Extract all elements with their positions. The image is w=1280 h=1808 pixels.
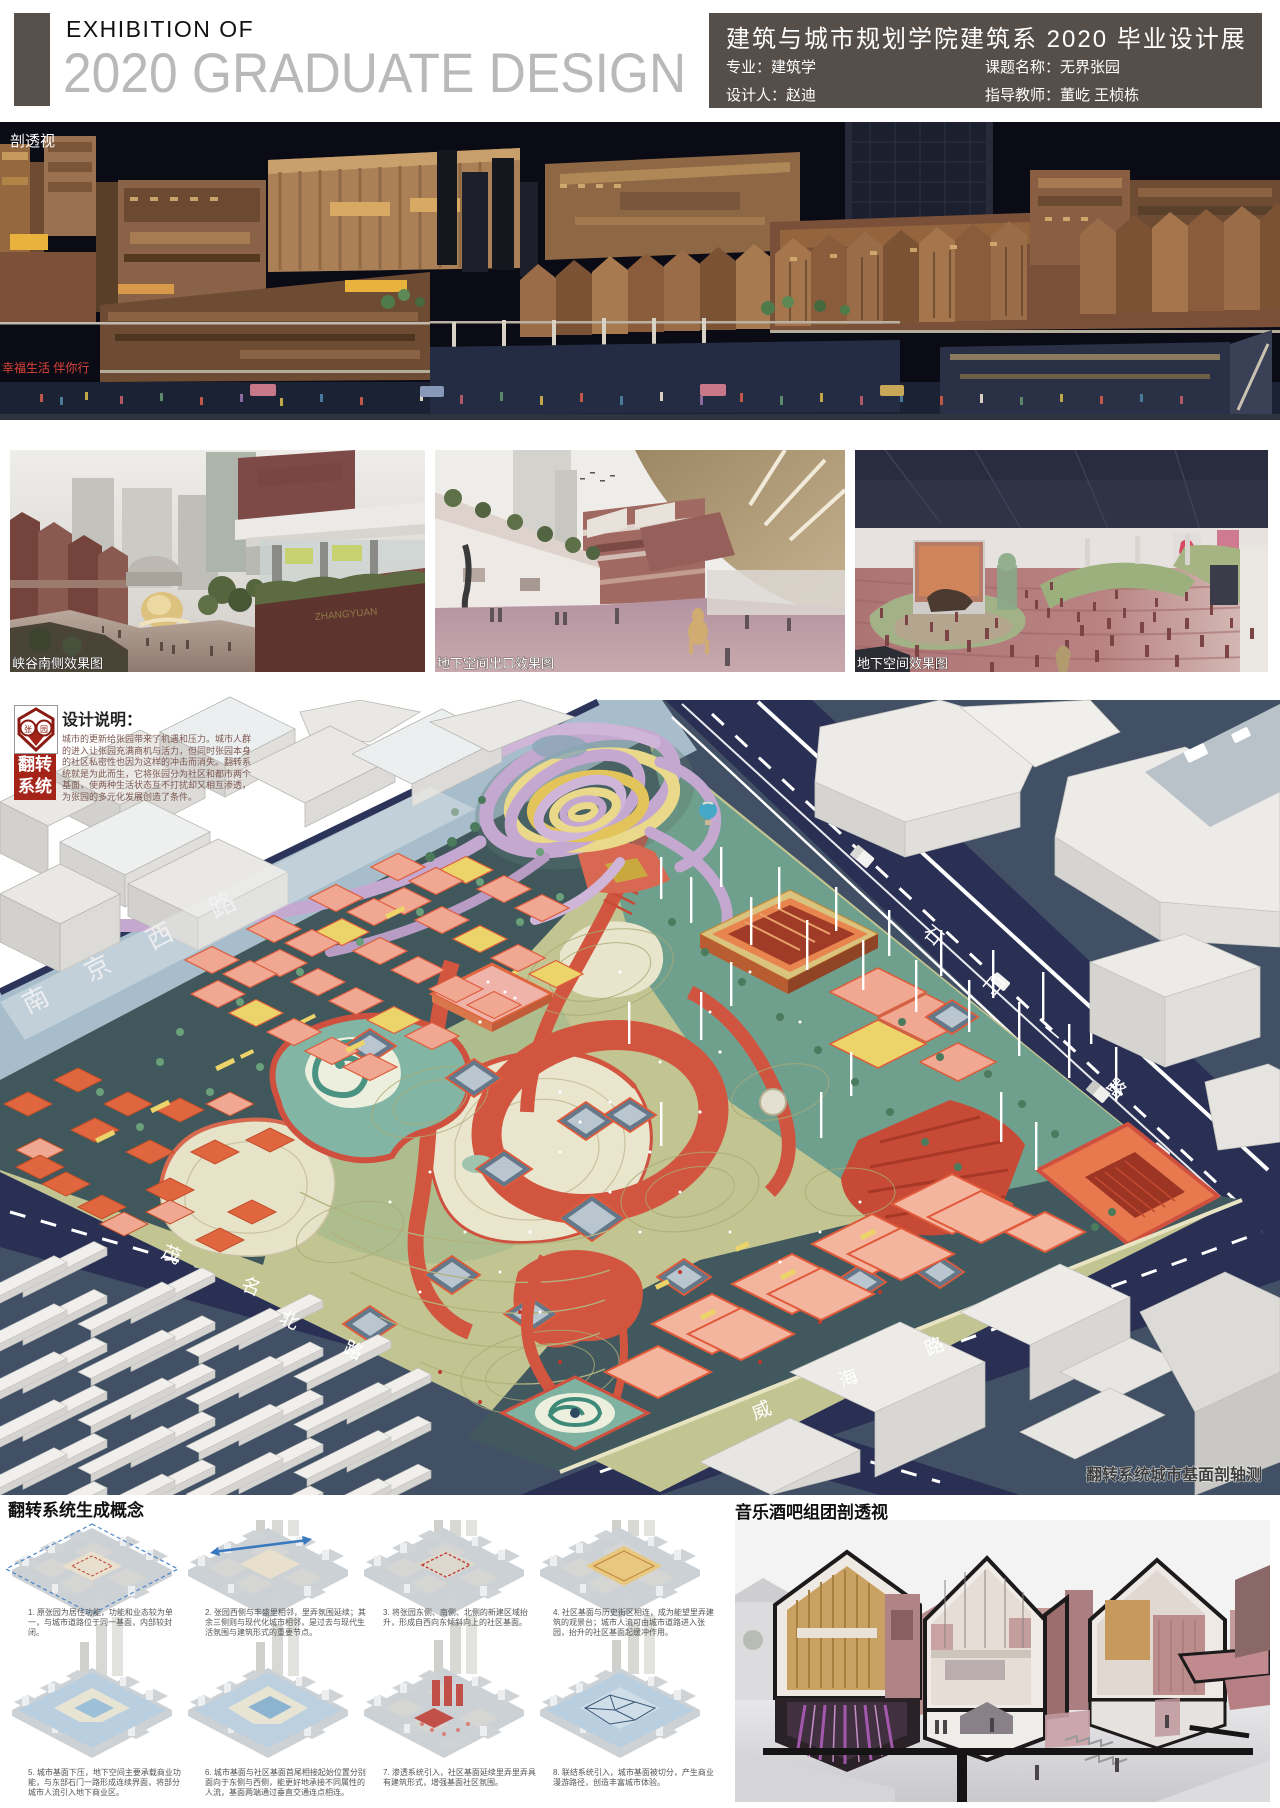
svg-text:张: 张 xyxy=(24,725,32,734)
svg-text:地下空间效果图: 地下空间效果图 xyxy=(857,656,948,671)
svg-text:园: 园 xyxy=(40,725,48,734)
svg-text:翻转系统城市基面剖轴测: 翻转系统城市基面剖轴测 xyxy=(1086,1465,1262,1484)
svg-text:幸福生活 伴你行: 幸福生活 伴你行 xyxy=(2,360,89,375)
svg-text:峡谷南侧效果图: 峡谷南侧效果图 xyxy=(12,656,103,671)
svg-text:地下空间出口效果图: 地下空间出口效果图 xyxy=(437,656,554,671)
svg-text:剖透视: 剖透视 xyxy=(10,133,55,150)
